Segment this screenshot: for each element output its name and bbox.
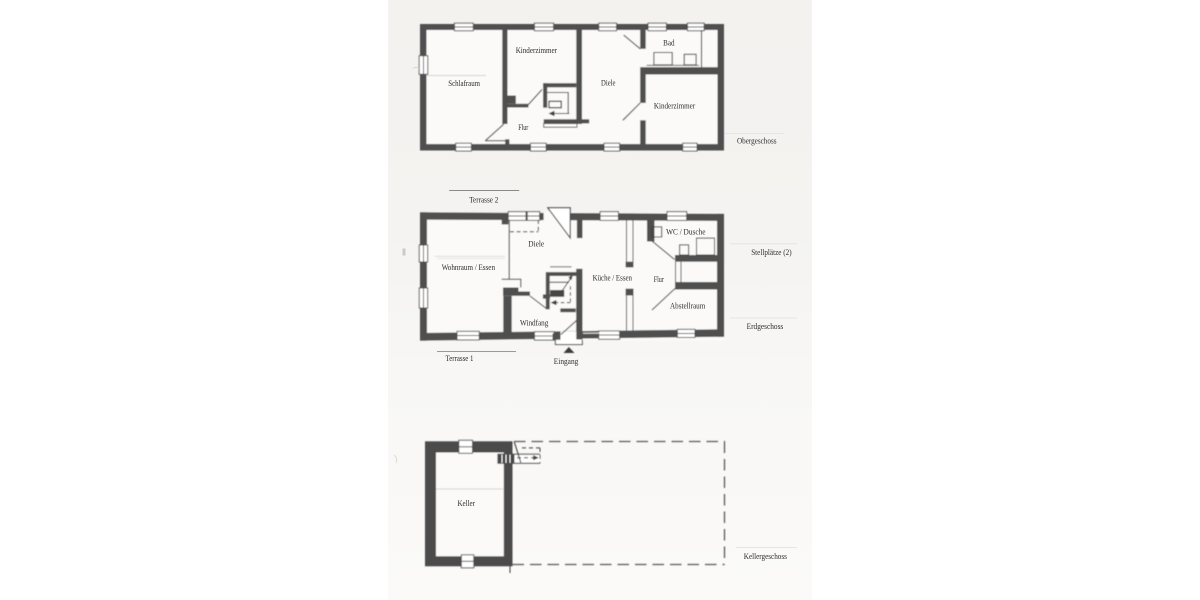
svg-text:Flur: Flur	[654, 275, 664, 284]
svg-text:Flur: Flur	[518, 123, 528, 132]
svg-text:Stellplätze (2): Stellplätze (2)	[751, 248, 792, 257]
svg-text:Kellergeschoss: Kellergeschoss	[744, 552, 787, 561]
svg-text:Diele: Diele	[528, 239, 544, 248]
svg-text:Terrasse 1: Terrasse 1	[446, 354, 474, 363]
svg-text:Küche / Essen: Küche / Essen	[593, 273, 632, 282]
svg-text:Keller: Keller	[458, 499, 476, 508]
svg-text:Bad: Bad	[663, 39, 674, 48]
svg-text:Terrasse 2: Terrasse 2	[469, 196, 498, 205]
svg-text:Schlafraum: Schlafraum	[448, 79, 480, 88]
svg-text:Kinderzimmer: Kinderzimmer	[654, 101, 696, 110]
svg-text:Wohnraum / Essen: Wohnraum / Essen	[442, 263, 495, 272]
svg-text:Windfang: Windfang	[520, 318, 548, 327]
svg-text:Abstellraum: Abstellraum	[670, 301, 706, 310]
svg-text:Kinderzimmer: Kinderzimmer	[516, 46, 558, 55]
svg-text:Erdgeschoss: Erdgeschoss	[747, 322, 784, 331]
svg-text:Diele: Diele	[601, 79, 616, 88]
svg-text:Obergeschoss: Obergeschoss	[737, 137, 777, 146]
svg-text:Eingang: Eingang	[554, 357, 579, 366]
svg-text:WC / Dusche: WC / Dusche	[666, 228, 706, 237]
